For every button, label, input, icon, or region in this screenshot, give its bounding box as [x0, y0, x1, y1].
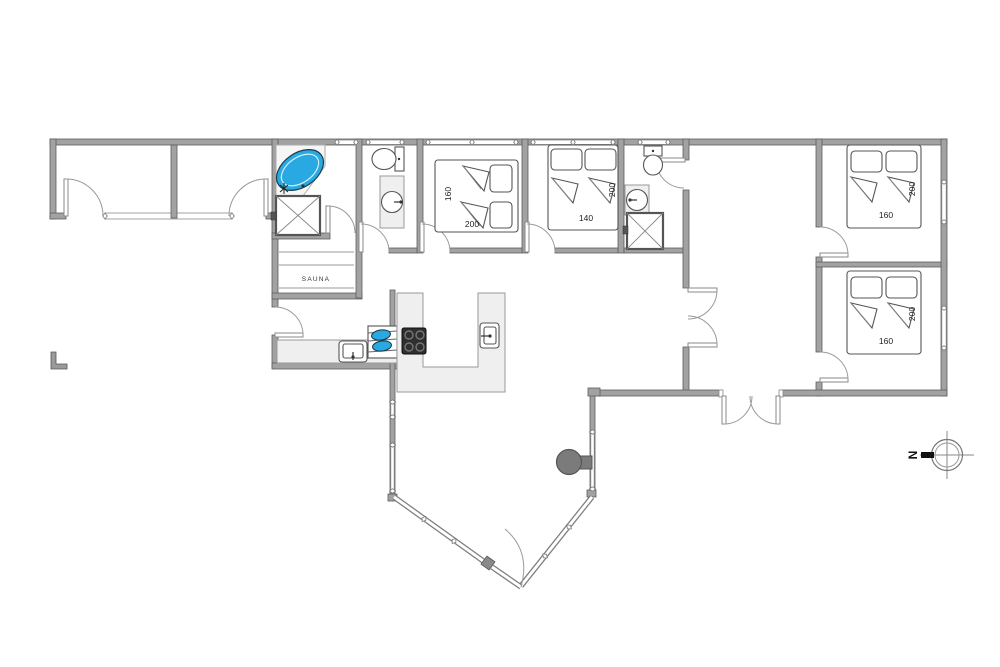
shed-south-light-wall: [105, 213, 232, 219]
entrance-door-leaf-right: [776, 396, 780, 424]
shower1-valve-icon: [271, 212, 276, 220]
window-north-1: [337, 140, 356, 144]
compass-icon: N: [906, 431, 974, 479]
bed3-pillow: [851, 151, 882, 172]
living-room: [557, 450, 593, 475]
shed-west-wall: [50, 139, 56, 219]
bed2-length-label: 200: [607, 183, 617, 197]
bath1-door-leaf: [326, 206, 330, 233]
bedroom1-door-leaf: [420, 222, 424, 252]
entrance-door-arc-left: [724, 396, 752, 424]
entrance-door-arc-right: [750, 396, 778, 424]
wood-stove-icon: [557, 450, 582, 475]
kitchen-south-wall: [272, 363, 398, 369]
corridor-wall-a: [389, 248, 417, 253]
bay-window-walls: [394, 497, 592, 587]
wc-door-leaf: [359, 222, 363, 252]
hall-west-wall-b: [683, 190, 689, 288]
living-hall-door-leaf-top: [688, 288, 717, 292]
bed3-width-label: 160: [879, 210, 893, 220]
bedrooms-east-west-wall-b: [816, 257, 822, 352]
shed-divider-wall: [171, 145, 177, 218]
window-north-2: [368, 140, 402, 144]
bed2-pillow: [585, 149, 616, 170]
bedroom-3: 160 200: [847, 145, 921, 228]
bed4-width-label: 160: [879, 336, 893, 346]
toilet2-icon: [644, 155, 663, 175]
bedroom2-bath2-divider: [618, 139, 624, 253]
sauna-south-wall: [272, 293, 362, 299]
compass-north-pointer: [921, 452, 934, 458]
terrace-corner-marker: [51, 352, 67, 369]
south-wall-mid: [597, 390, 722, 396]
east-bedrooms-divider: [816, 262, 947, 267]
bed1-pillow: [490, 202, 512, 228]
wc-room: [372, 147, 404, 228]
window-east-se-bedroom: [942, 308, 946, 348]
bed4-pillow: [886, 277, 917, 298]
bedroom-1: 160 200: [435, 160, 518, 232]
se-bedroom-door-arc: [820, 352, 848, 380]
bed3-length-label: 200: [907, 182, 917, 196]
bedroom-4: 160 200: [847, 271, 921, 354]
floor-plan-svg: SAUNA 160 200 140 200: [0, 0, 1000, 667]
shed1-door-leaf: [64, 179, 68, 216]
window-bay-west-large: [391, 443, 394, 493]
living-hall-door-arc-top: [688, 290, 717, 319]
bedroom2-door-leaf: [525, 222, 529, 252]
kitchen-exterior-door-arc: [275, 307, 303, 335]
bathroom-1: [269, 141, 331, 235]
corridor-wall-c: [555, 248, 618, 253]
bedrooms-east-west-wall-a: [816, 139, 822, 227]
corridor-wall-b: [450, 248, 522, 253]
bath1-door-arc: [328, 206, 355, 233]
se-bedroom-door-leaf: [820, 378, 848, 382]
shower2-valve-icon: [623, 226, 628, 234]
kitchen-exterior-door-leaf: [275, 333, 303, 337]
shed1-door-arc: [66, 179, 103, 216]
living-hall-door-leaf-bottom: [688, 343, 717, 347]
sauna-room: SAUNA: [279, 252, 354, 288]
bed1-pillow: [490, 165, 512, 192]
compass-north-label: N: [906, 451, 920, 460]
bed3-pillow: [886, 151, 917, 172]
ne-bedroom-door-leaf: [820, 253, 848, 257]
bed1-length-label: 200: [465, 219, 479, 229]
bathroom-2: [623, 146, 663, 249]
sauna-label: SAUNA: [302, 276, 330, 283]
bed1-width-label: 160: [443, 187, 453, 201]
shed2-door-arc: [229, 179, 266, 216]
hall-west-wall-c: [683, 347, 689, 393]
south-wall-east: [780, 390, 947, 396]
entrance-door-leaf-left: [722, 396, 726, 424]
bed2-pillow: [551, 149, 582, 170]
hall-west-wall-a: [683, 139, 689, 160]
east-wall: [941, 139, 947, 396]
bed2-width-label: 140: [579, 213, 593, 223]
shed2-door-leaf: [264, 179, 268, 216]
ne-bedroom-door-arc: [820, 227, 848, 255]
bedroom-2: 140 200: [548, 145, 618, 230]
bath1-east-wall: [356, 139, 362, 298]
window-east-ne-bedroom: [942, 182, 946, 222]
bed4-pillow: [851, 277, 882, 298]
window-north-bath2: [640, 140, 668, 144]
living-hall-door-arc-bottom: [688, 316, 717, 345]
bay-ne-corner: [588, 388, 600, 396]
toilet1-icon: [372, 149, 396, 170]
bed4-length-label: 200: [907, 307, 917, 321]
